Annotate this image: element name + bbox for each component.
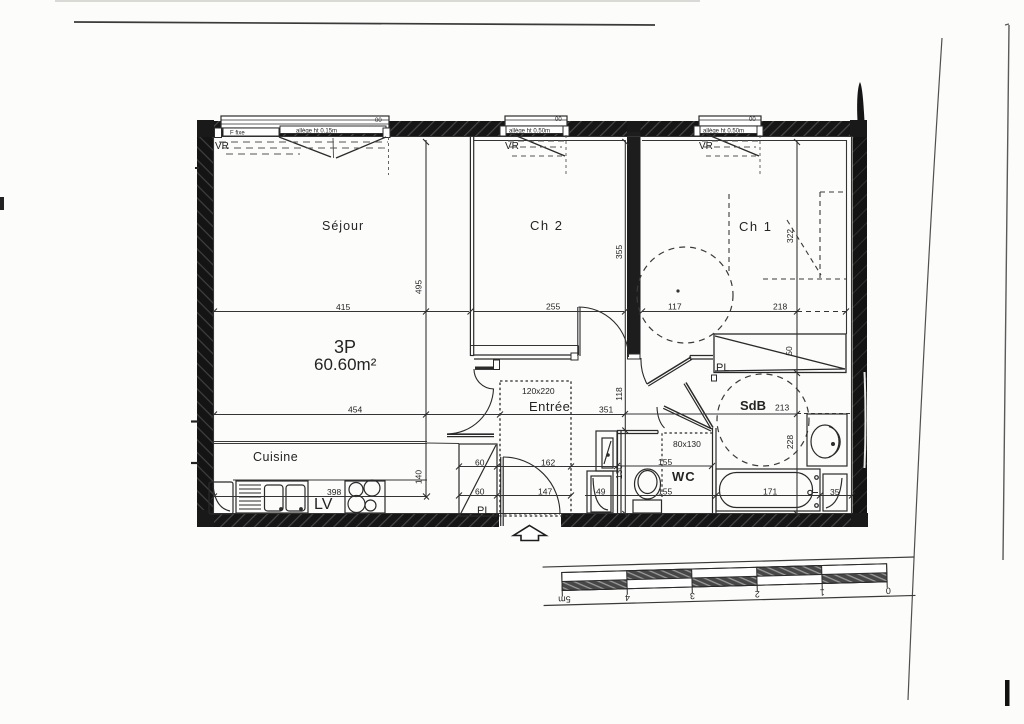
svg-text:49: 49 (596, 487, 606, 497)
svg-text:140: 140 (414, 470, 424, 484)
svg-text:1: 1 (820, 587, 825, 597)
svg-text:allège ht 0.50m: allège ht 0.50m (509, 129, 550, 135)
svg-text:60: 60 (475, 458, 485, 468)
svg-text:120x220: 120x220 (522, 386, 555, 396)
svg-text:00: 00 (555, 117, 562, 123)
svg-text:130: 130 (614, 465, 624, 479)
svg-text:218: 218 (773, 302, 787, 312)
svg-text:WC: WC (672, 469, 696, 484)
svg-text:PL: PL (477, 505, 490, 517)
svg-text:allège ht 0.15m: allège ht 0.15m (296, 129, 337, 135)
svg-text:213: 213 (775, 403, 789, 413)
svg-text:VR: VR (699, 141, 713, 152)
svg-text:147: 147 (538, 487, 552, 497)
svg-text:398: 398 (327, 487, 341, 497)
svg-text:171: 171 (763, 487, 777, 497)
svg-text:VR: VR (215, 141, 229, 152)
svg-text:Ch 1: Ch 1 (739, 219, 772, 234)
svg-text:60: 60 (475, 487, 485, 497)
svg-text:5m: 5m (558, 594, 571, 604)
svg-text:4: 4 (625, 593, 630, 603)
svg-text:F fixe: F fixe (230, 131, 245, 137)
svg-text:PL: PL (716, 362, 729, 374)
svg-text:VR: VR (505, 141, 519, 152)
svg-text:00: 00 (375, 118, 382, 124)
svg-text:2: 2 (755, 589, 760, 599)
svg-text:60.60m²: 60.60m² (314, 355, 377, 374)
svg-text:0: 0 (886, 586, 891, 596)
svg-text:162: 162 (541, 458, 555, 468)
svg-text:255: 255 (546, 302, 560, 312)
svg-text:228: 228 (785, 435, 795, 449)
svg-text:allège ht 0.50m: allège ht 0.50m (703, 129, 744, 135)
svg-text:3P: 3P (334, 337, 356, 357)
svg-text:117: 117 (668, 302, 682, 312)
svg-text:322: 322 (785, 229, 795, 243)
svg-text:80x130: 80x130 (673, 439, 701, 449)
svg-text:155: 155 (658, 457, 672, 467)
svg-text:50: 50 (784, 346, 794, 356)
svg-text:454: 454 (348, 405, 362, 415)
svg-text:3: 3 (690, 591, 695, 601)
svg-text:35: 35 (830, 487, 840, 497)
svg-text:Entrée: Entrée (529, 399, 570, 414)
svg-text:Ch 2: Ch 2 (530, 218, 563, 233)
svg-text:SdB: SdB (740, 398, 766, 413)
svg-text:118: 118 (614, 387, 624, 401)
svg-text:00: 00 (749, 117, 756, 123)
svg-text:Séjour: Séjour (322, 219, 364, 233)
svg-text:351: 351 (599, 405, 613, 415)
svg-text:LV: LV (314, 496, 333, 513)
svg-text:155: 155 (658, 487, 672, 497)
svg-text:355: 355 (614, 245, 624, 259)
svg-text:Cuisine: Cuisine (253, 450, 298, 464)
svg-text:415: 415 (336, 302, 350, 312)
svg-text:495: 495 (414, 280, 424, 294)
